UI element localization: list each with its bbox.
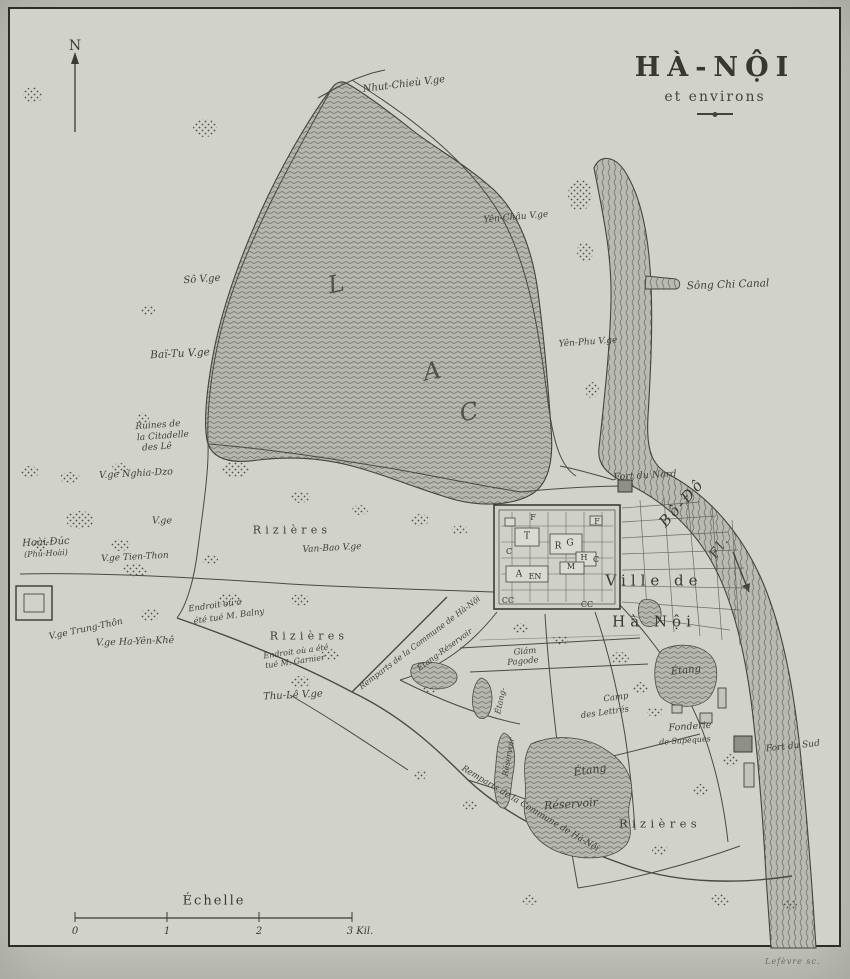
fort-du-sud-shape — [734, 736, 752, 752]
label-rizieres-south: Rizières — [619, 818, 701, 830]
forts — [16, 480, 754, 787]
label-citadel-key-f1: F — [530, 514, 536, 522]
label-citadel-key-cc1: CC — [502, 597, 514, 605]
label-rizieres-north: Rizières — [253, 525, 331, 536]
title-block: HÀ-NỘI et environs — [620, 52, 810, 115]
label-reservoir-big: Réservoir — [544, 797, 598, 812]
scale-tick-2: 2 — [256, 926, 262, 937]
engraver-credit: Lefèvre sc. — [765, 957, 821, 966]
map-title: HÀ-NỘI — [620, 52, 810, 83]
label-rizieres-west: Rizières — [270, 631, 348, 642]
map-page: Nhut-Chieù V.geYên-Châu V.geSô V.geBaï-T… — [0, 0, 850, 979]
label-citadel-key-cc2: CC — [581, 601, 593, 609]
label-ha-noi: Hà Nội — [612, 615, 696, 630]
label-citadel-key-t: T — [524, 533, 530, 542]
scale-title: Échelle — [183, 894, 246, 909]
scale-bar — [75, 912, 352, 922]
north-arrow — [71, 52, 79, 132]
compass-north-label: N — [69, 38, 81, 54]
label-citadel-key-m: M — [567, 563, 575, 571]
label-village: V.ge — [152, 516, 172, 526]
title-rule-ornament — [697, 113, 733, 115]
label-ha-yen-khe-village: V.ge Ha-Yên-Khê — [96, 636, 175, 648]
label-citadel-key-c2: C — [593, 556, 599, 564]
map-subtitle: et environs — [620, 89, 810, 105]
label-citadel-key-c1: C — [506, 548, 512, 556]
hoai-duc-fort-shape — [16, 586, 52, 620]
scale-tick-0: 0 — [72, 926, 78, 937]
label-citadel-key-g: G — [566, 540, 573, 549]
label-song-chi-canal: Sông Chi Canal — [687, 278, 770, 291]
scale-tick-3: 3 Kil. — [347, 926, 374, 937]
label-citadel-key-en: EN — [529, 573, 542, 581]
scale-tick-1: 1 — [164, 926, 170, 937]
song-chi-canal-shape — [645, 276, 680, 289]
label-citadel-key-f2: F — [594, 518, 600, 526]
label-citadel-key-r: R — [555, 543, 562, 552]
label-citadel-key-a: A — [516, 571, 523, 580]
label-citadel-key-h: H — [581, 554, 588, 562]
citadel — [494, 505, 620, 609]
map-artwork — [0, 0, 850, 979]
lake-shape — [206, 82, 552, 504]
label-ville-de: Ville de — [605, 574, 702, 589]
